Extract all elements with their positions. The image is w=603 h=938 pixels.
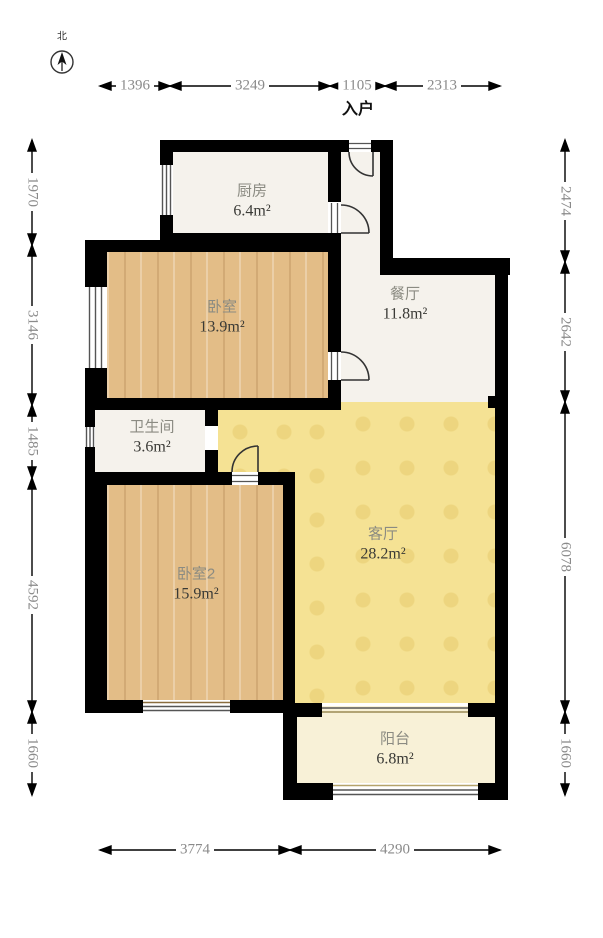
dim-left-2: 3146 xyxy=(25,306,40,344)
compass-north-label: 北 xyxy=(57,28,67,43)
entry-door-sill xyxy=(349,140,371,152)
dim-right-3: 6078 xyxy=(558,538,573,576)
bathroom-area: 3.6m² xyxy=(129,437,174,457)
room-label-bedroom2: 卧室2 15.9m² xyxy=(173,566,218,605)
entry-door xyxy=(349,152,373,176)
bedroom1-window xyxy=(85,287,107,368)
dim-bottom-2: 4290 xyxy=(376,843,414,858)
room-label-living: 客厅 28.2m² xyxy=(360,526,405,565)
dim-left-1: 1970 xyxy=(25,173,40,211)
balcony-name: 阳台 xyxy=(376,731,413,750)
dim-bottom-1: 3774 xyxy=(176,843,214,858)
dim-left-3: 1485 xyxy=(25,422,40,460)
plan-linework xyxy=(0,0,603,938)
bedroom2-door xyxy=(232,446,258,472)
kitchen-door xyxy=(341,205,369,233)
dim-right-1: 2474 xyxy=(558,182,573,220)
living-name: 客厅 xyxy=(360,526,405,545)
dim-top-4: 2313 xyxy=(423,79,461,94)
bedroom1-area: 13.9m² xyxy=(199,317,244,337)
dimension-lines xyxy=(28,82,569,854)
room-label-dining: 餐厅 11.8m² xyxy=(383,286,428,325)
entrance-label: 入户 xyxy=(342,95,374,119)
kitchen-window xyxy=(160,165,173,215)
compass-icon xyxy=(51,51,73,73)
bedroom1-door xyxy=(341,352,369,380)
dim-left-5: 1660 xyxy=(25,734,40,772)
dining-name: 餐厅 xyxy=(383,286,428,305)
bedroom2-area: 15.9m² xyxy=(173,584,218,604)
dining-area: 11.8m² xyxy=(383,304,428,324)
room-label-bedroom1: 卧室 13.9m² xyxy=(199,299,244,338)
room-label-kitchen: 厨房 6.4m² xyxy=(233,183,270,222)
room-label-balcony: 阳台 6.8m² xyxy=(376,731,413,770)
kitchen-name: 厨房 xyxy=(233,183,270,202)
balcony-window xyxy=(333,786,478,795)
bedroom1-name: 卧室 xyxy=(199,299,244,318)
floor-plan: 北 入户 厨房 6.4m² 餐厅 11.8m² 卧室 13.9m² 卫生间 3.… xyxy=(0,0,603,938)
bedroom2-name: 卧室2 xyxy=(173,566,218,585)
kitchen-area: 6.4m² xyxy=(233,201,270,221)
dim-right-2: 2642 xyxy=(558,313,573,351)
room-label-bathroom: 卫生间 3.6m² xyxy=(129,419,174,458)
bathroom-name: 卫生间 xyxy=(129,419,174,438)
bedroom2-window xyxy=(143,700,230,713)
balcony-opening xyxy=(322,708,468,712)
bathroom-window xyxy=(85,427,95,447)
living-area: 28.2m² xyxy=(360,544,405,564)
dim-left-4: 4592 xyxy=(25,576,40,614)
balcony-area: 6.8m² xyxy=(376,749,413,769)
dim-top-3: 1105 xyxy=(338,79,375,94)
dim-top-2: 3249 xyxy=(231,79,269,94)
dim-top-1: 1396 xyxy=(116,79,154,94)
dim-right-4: 1660 xyxy=(558,734,573,772)
